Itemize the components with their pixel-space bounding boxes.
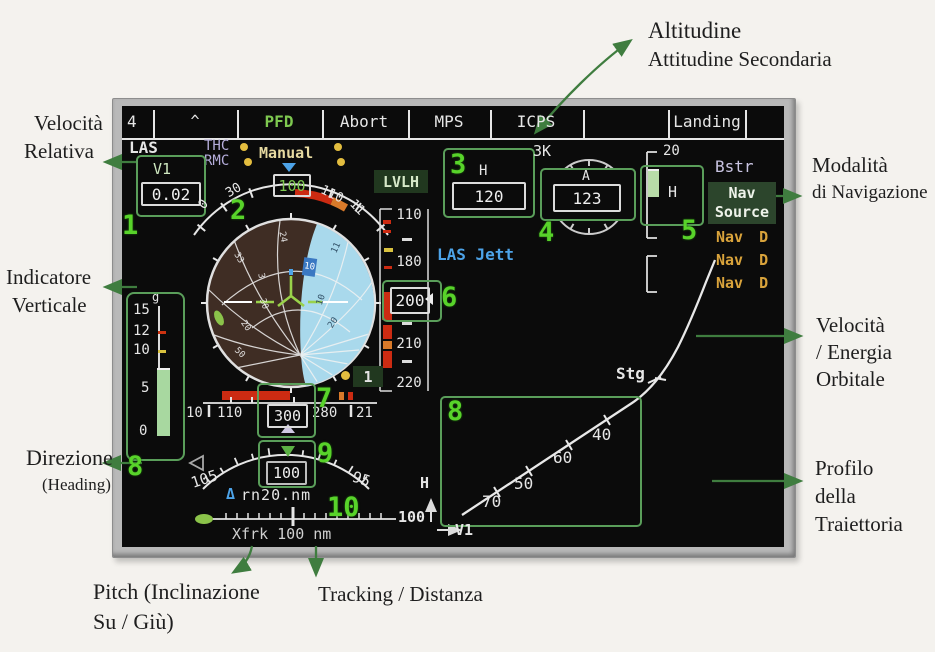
att2-value: 123 [553, 184, 621, 212]
callout-4: 4 [538, 219, 554, 246]
annotation-altitudine-line2: Attitudine Secondaria [648, 46, 832, 73]
annotation-altitudine-line1: Altitudine [648, 16, 741, 46]
callout-8-heading: 8 [127, 453, 143, 480]
delta-range-value: rn20.nm [241, 488, 311, 504]
menu-item-abort[interactable]: Abort [327, 114, 401, 131]
g-unit-label: g [152, 291, 159, 304]
vtape-value-box: 200 [390, 287, 430, 314]
bstr-label: Bstr [715, 159, 754, 176]
menu-separator [237, 110, 239, 138]
menu-separator [668, 110, 670, 138]
callout-6: 6 [441, 284, 457, 311]
callout-8-graph: 8 [447, 398, 463, 425]
graph-yaxis-label: H [420, 476, 429, 492]
thc-label: THC [204, 139, 229, 154]
vtape-180: 180 [394, 255, 424, 270]
g-tick-0: 0 [139, 424, 147, 439]
callout-1: 1 [122, 212, 138, 239]
annotation-velocita-relativa-line1: Velocità [34, 110, 103, 137]
roll-value-box: 100 [273, 174, 311, 197]
graph-point-50: 50 [514, 476, 533, 493]
thc-indicator-dot [240, 143, 248, 151]
callout-9: 9 [317, 440, 333, 467]
h-meter-bar [648, 169, 659, 197]
vtape-110: 110 [394, 208, 424, 223]
graph-point-40: 40 [592, 427, 611, 444]
annotation-direzione-line1: Direzione [26, 444, 113, 473]
callout-2: 2 [230, 197, 246, 224]
menu-item-4[interactable]: 4 [127, 114, 137, 131]
nav-source-line2: Source [715, 203, 769, 222]
graph-point-70: 70 [482, 494, 501, 511]
nav-source-line1: Nav [728, 184, 755, 203]
ball-10-tab: 10 [302, 257, 317, 277]
heading-110: 110 [217, 406, 242, 421]
v1-label: V1 [153, 162, 171, 178]
annotation-direzione-line2: (Heading) [42, 474, 111, 496]
rmc-label: RMC [204, 154, 229, 169]
track-scale-end: 100 [398, 510, 425, 526]
annotation-indicatore-line2: Verticale [12, 292, 87, 319]
g-bar [157, 368, 170, 436]
menu-item-icps[interactable]: ICPS [495, 114, 577, 131]
heading-10: 10 [186, 406, 203, 421]
manual-indicator-dot [334, 143, 342, 151]
callout-5: 5 [681, 217, 697, 244]
g-tick-15: 15 [133, 303, 150, 318]
callout-10: 10 [327, 494, 360, 521]
trajectory-box [440, 396, 642, 527]
annotation-pitch-line2: Su / Giù) [93, 608, 174, 637]
status-dot [341, 371, 350, 380]
menu-item-mps[interactable]: MPS [413, 114, 485, 131]
annotation-indicatore-line1: Indicatore [6, 264, 91, 291]
nav-source-badge[interactable]: Nav Source [708, 182, 776, 224]
g-tick-5: 5 [141, 381, 149, 396]
figure: 4 ^ PFD Abort MPS ICPS Landing LAS THC R… [0, 0, 935, 652]
nav-d-item[interactable]: Nav D [716, 230, 768, 246]
graph-xaxis-label: V1 [455, 523, 473, 539]
manual-indicator-dot [337, 158, 345, 166]
annotation-modalita-line2: di Navigazione [812, 181, 928, 206]
graph-point-60: 60 [553, 450, 572, 467]
g-red-tick [158, 331, 166, 334]
annotation-tracking-line1: Tracking / Distanza [318, 581, 483, 608]
nav-d-item[interactable]: Nav D [716, 253, 768, 269]
altitude-label: H [479, 164, 487, 179]
annotation-modalita-line1: Modalità [812, 152, 888, 179]
annotation-energia-line2: / Energia [816, 339, 892, 366]
menu-separator [408, 110, 410, 138]
annotation-pitch-line1: Pitch (Inclinazione [93, 578, 260, 607]
menu-item-up[interactable]: ^ [160, 114, 230, 130]
pitch-value-box: 100 [266, 461, 307, 485]
annotation-energia-line1: Velocità [816, 312, 885, 339]
annotation-profilo-line1: Profilo [815, 455, 873, 482]
vtape-220: 220 [394, 376, 424, 391]
ball-badge-1: 1 [353, 366, 383, 387]
ball-number: 24 [277, 231, 289, 243]
heading-21: 21 [356, 406, 373, 421]
xtrk-label: Xfrk 100 nm [232, 527, 331, 543]
att2-label: A [582, 170, 590, 184]
callout-3: 3 [450, 151, 466, 178]
menu-separator [153, 110, 155, 138]
vtape-210: 210 [394, 337, 424, 352]
rmc-indicator-dot [244, 158, 252, 166]
hmeter-label: H [668, 185, 677, 201]
g-tick-10: 10 [133, 343, 150, 358]
nav-d-item[interactable]: Nav D [716, 276, 768, 292]
delta-icon: Δ [226, 487, 235, 503]
menu-separator [583, 110, 585, 138]
g-tick-12: 12 [133, 324, 150, 339]
heading-greenbox [257, 383, 316, 438]
callout-7: 7 [316, 385, 332, 412]
las-jett-label: LAS Jett [437, 247, 514, 264]
lvlh-badge: LVLH [374, 170, 428, 193]
menu-item-landing[interactable]: Landing [670, 114, 744, 131]
hmeter-top-label: 20 [663, 144, 680, 159]
stg-label: Stg [616, 366, 645, 383]
v1-value: 0.02 [141, 182, 201, 206]
annotation-energia-line3: Orbitale [816, 366, 885, 393]
3k-label: 3K [533, 144, 551, 160]
menu-separator [322, 110, 324, 138]
annotation-profilo-line3: Traiettoria [815, 511, 903, 538]
manual-mode-label: Manual [259, 146, 313, 162]
annotation-velocita-relativa-line2: Relativa [24, 138, 94, 165]
annotation-profilo-line2: della [815, 483, 856, 510]
menu-separator [490, 110, 492, 138]
menu-item-pfd[interactable]: PFD [244, 114, 314, 131]
altitude-value: 120 [452, 182, 526, 210]
menu-separator [745, 110, 747, 138]
g-yellow-tick [158, 350, 166, 353]
